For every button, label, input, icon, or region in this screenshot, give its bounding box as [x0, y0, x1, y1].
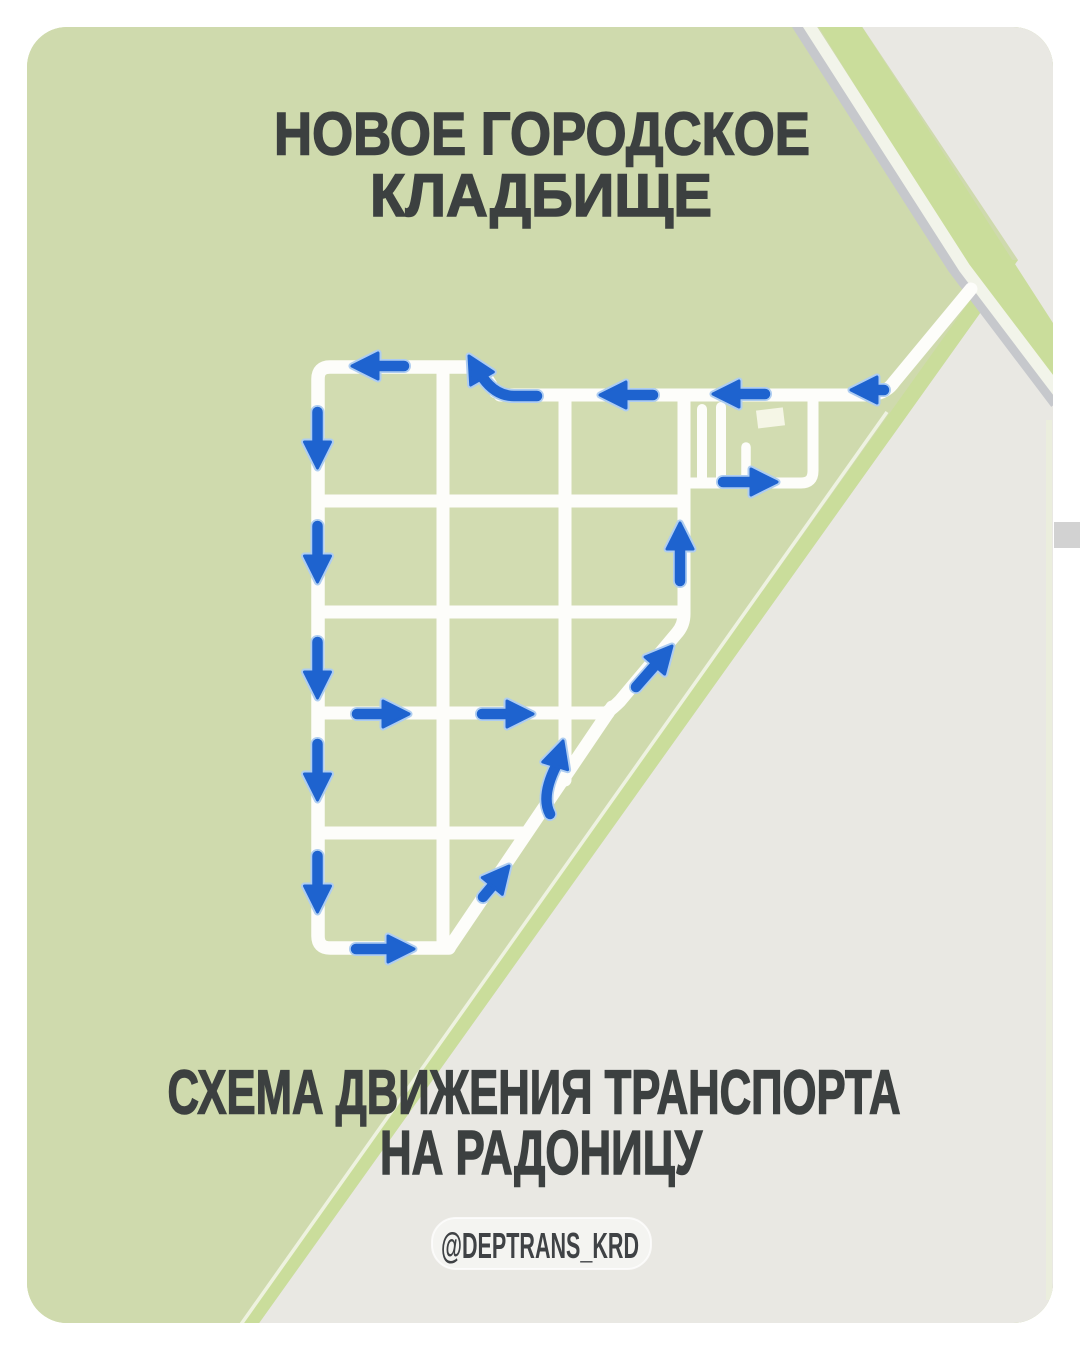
svg-text:@DEPTRANS_KRD: @DEPTRANS_KRD: [441, 1225, 639, 1266]
svg-text:СХЕМА ДВИЖЕНИЯ ТРАНСПОРТА: СХЕМА ДВИЖЕНИЯ ТРАНСПОРТА: [168, 1058, 901, 1128]
svg-text:КЛАДБИЩЕ: КЛАДБИЩЕ: [370, 162, 712, 229]
svg-text:НОВОЕ ГОРОДСКОЕ: НОВОЕ ГОРОДСКОЕ: [274, 101, 810, 168]
svg-text:НА РАДОНИЦУ: НА РАДОНИЦУ: [380, 1118, 703, 1188]
